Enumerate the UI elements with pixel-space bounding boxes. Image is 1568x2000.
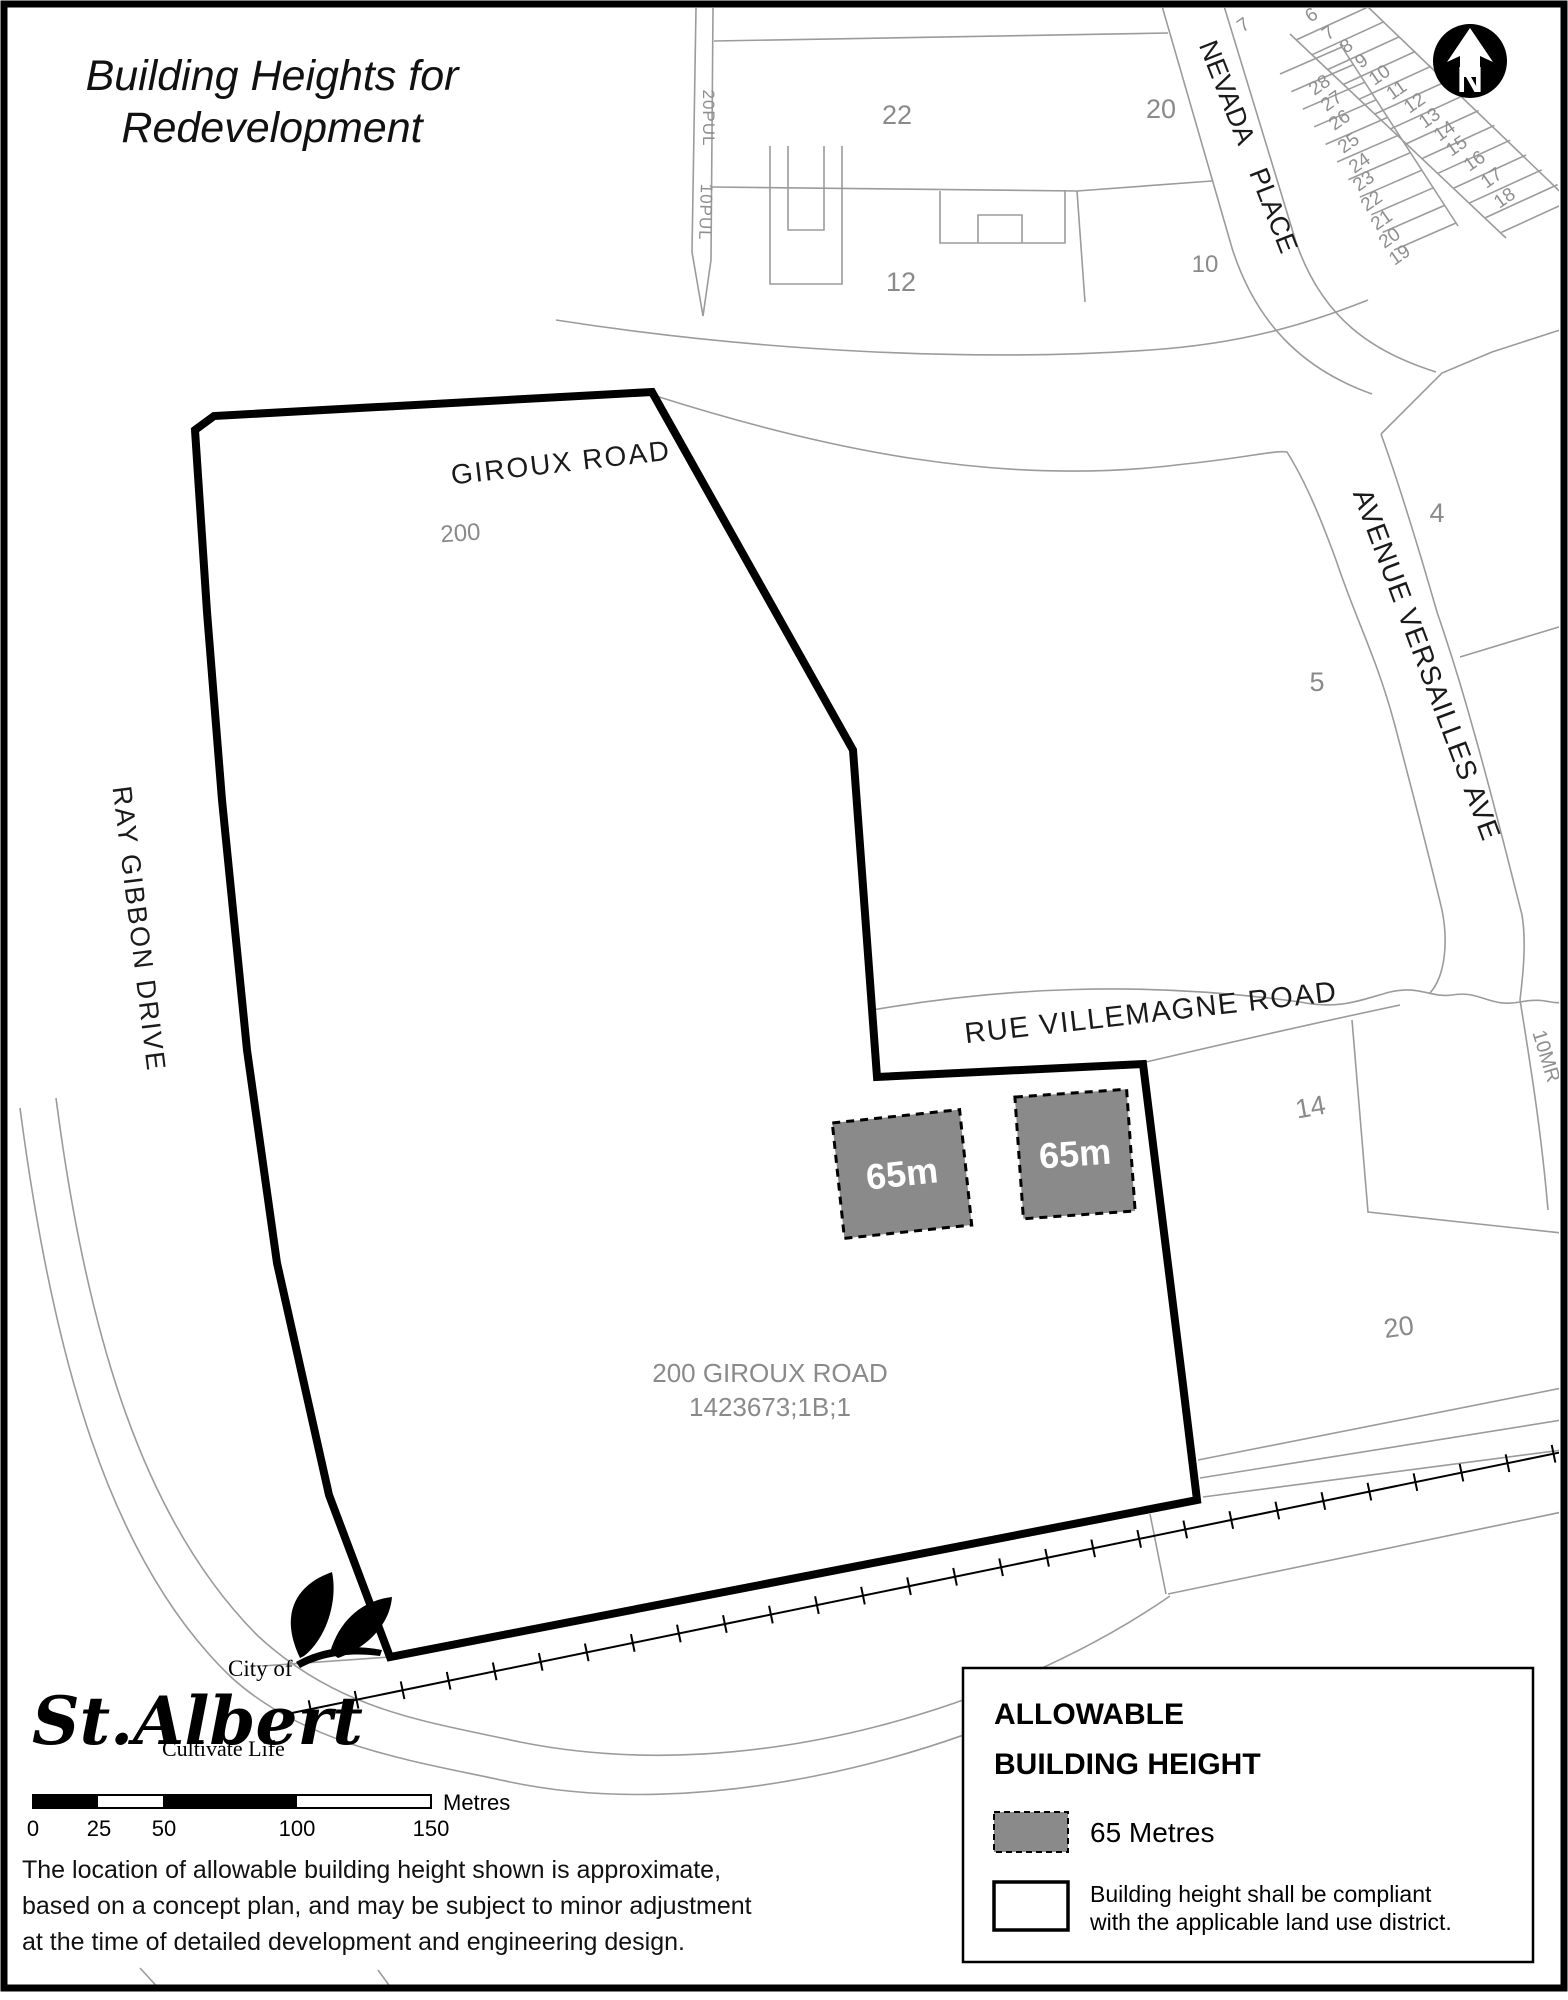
scale-tick-0: 0	[27, 1816, 39, 1841]
parcel-4: 4	[1429, 498, 1444, 528]
parcel-10pul: 10PUL	[695, 183, 716, 241]
parcel-14: 14	[1293, 1090, 1328, 1125]
height-box-east-label: 65m	[1038, 1131, 1113, 1177]
parcel-20-top: 20	[1146, 94, 1176, 124]
map-canvas: 65m 65m GIROUX ROAD RAY GIBBON DRIVE NEV…	[0, 0, 1568, 2000]
parcel-200: 200	[440, 519, 482, 549]
scale-unit: Metres	[443, 1790, 510, 1815]
scale-tick-50: 50	[152, 1816, 176, 1841]
legend-title-2: BUILDING HEIGHT	[994, 1748, 1261, 1781]
legend-swatch-65m	[994, 1812, 1068, 1852]
title-line-2: Redevelopment	[121, 104, 424, 152]
parcel-10: 10	[1192, 251, 1219, 278]
parcel-20-right: 20	[1382, 1310, 1416, 1344]
legend-label-district-2: with the applicable land use district.	[1089, 1909, 1452, 1935]
logo-tagline: Cultivate Life	[162, 1736, 285, 1761]
parcel-12: 12	[886, 267, 916, 297]
parcel-5: 5	[1309, 667, 1324, 697]
logo-prefix: City of	[228, 1656, 293, 1681]
site-address: 200 GIROUX ROAD	[652, 1358, 888, 1388]
disclaimer-line-1: The location of allowable building heigh…	[22, 1856, 721, 1884]
legend-label-district-1: Building height shall be compliant	[1090, 1881, 1432, 1907]
disclaimer-line-2: based on a concept plan, and may be subj…	[22, 1892, 752, 1920]
disclaimer-note: The location of allowable building heigh…	[22, 1856, 752, 1956]
title-line-1: Building Heights for	[86, 52, 461, 100]
parcel-20pul: 20PUL	[699, 90, 718, 147]
legend-title-1: ALLOWABLE	[994, 1698, 1184, 1731]
height-box-east: 65m	[1015, 1089, 1135, 1219]
scale-tick-100: 100	[279, 1816, 316, 1841]
north-arrow-n: N	[1457, 59, 1483, 100]
disclaimer-line-3: at the time of detailed development and …	[22, 1928, 685, 1956]
map-page: 65m 65m GIROUX ROAD RAY GIBBON DRIVE NEV…	[0, 0, 1568, 2000]
scale-tick-150: 150	[413, 1816, 450, 1841]
legend: ALLOWABLE BUILDING HEIGHT 65 Metres Buil…	[963, 1668, 1533, 1962]
legend-label-65m: 65 Metres	[1090, 1817, 1215, 1848]
height-box-west-label: 65m	[864, 1149, 940, 1197]
height-box-west: 65m	[832, 1110, 971, 1239]
scale-tick-25: 25	[87, 1816, 111, 1841]
site-legal-description: 1423673;1B;1	[689, 1392, 851, 1422]
parcel-22: 22	[882, 100, 912, 130]
legend-swatch-district	[994, 1882, 1068, 1930]
